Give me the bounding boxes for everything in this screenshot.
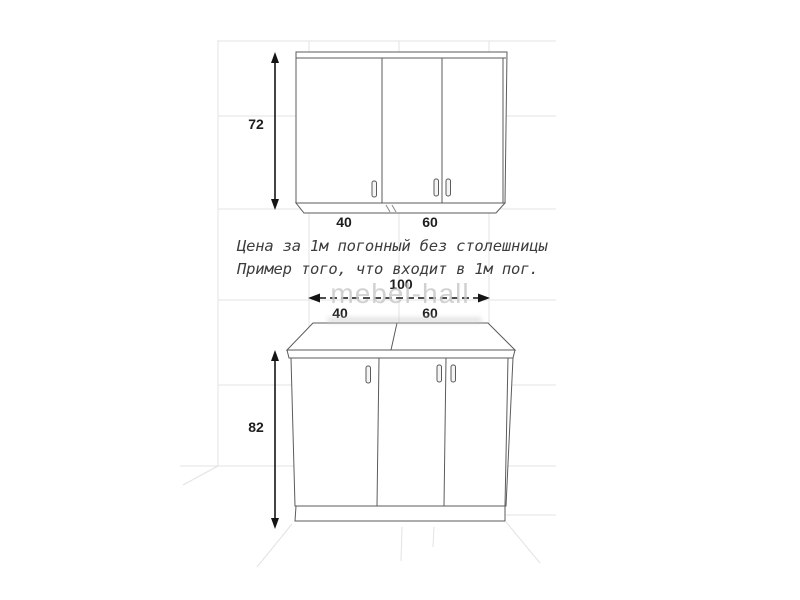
upper-cabinet-bottom-panel [296,203,505,213]
upper-cabinet-body [296,52,507,203]
door-handle [437,365,442,382]
price-note-line1: Цена за 1м погонный без столешницы [237,239,547,255]
door-handle [434,179,439,196]
door-handle [366,366,371,383]
upper-height-dimension-arrow [271,52,279,210]
floor-line [506,522,540,563]
arrowhead-up-icon [271,350,279,361]
floor-line [257,524,292,567]
lower-cabinet-drawing [287,323,515,521]
arrowhead-up-icon [271,52,279,63]
floor-line [433,527,434,547]
lower-height-dimension-arrow [271,350,279,529]
kitchen-dimensions-diagram: 72 40 60 100 40 60 82 Цена за 1м погонны… [0,0,800,600]
door-handle [372,181,377,197]
arrowhead-down-icon [271,518,279,529]
arrowhead-down-icon [271,199,279,210]
lower-cabinet-body [291,358,513,506]
door-handle [446,179,451,196]
door-handle [451,365,456,382]
floor-line [183,466,218,485]
lower-height-label: 82 [236,420,276,434]
upper-section-40-label: 40 [326,215,362,229]
watermark-blur [327,317,482,323]
plinth [295,506,505,521]
upper-section-60-label: 60 [412,215,448,229]
upper-cabinet-drawing [296,52,507,213]
price-note-line2: Пример того, что входит в 1м пог. [237,262,538,278]
upper-height-label: 72 [236,117,276,131]
countertop-surface [287,323,515,350]
floor-line [401,527,402,561]
countertop-front-edge [287,350,515,358]
watermark-text: mebel-hall [290,280,510,308]
